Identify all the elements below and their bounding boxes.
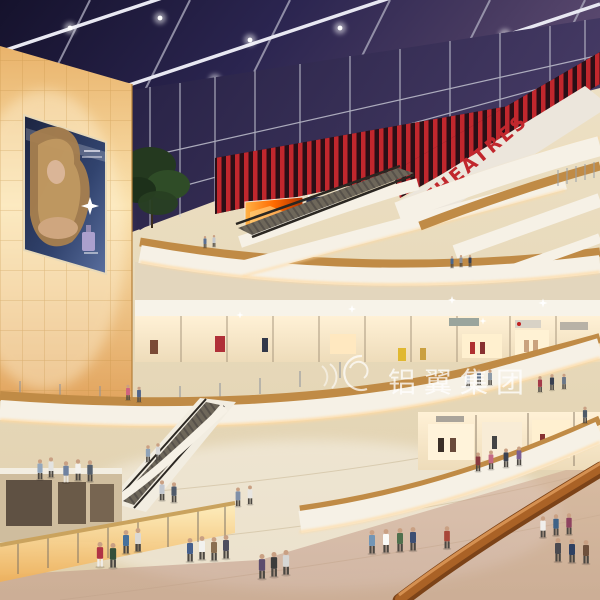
backlit-panel-wall	[0, 46, 132, 400]
billboard-perfume-bottle	[82, 232, 95, 251]
watermark-text: 铝翼集团	[388, 366, 532, 399]
shop-signboard-right	[436, 416, 464, 422]
perfume-billboard	[24, 115, 106, 274]
atrium-scene: THEATRES	[0, 0, 600, 600]
mall-atrium-rendering: THEATRES	[0, 0, 600, 600]
billboard-model-shoulder	[38, 217, 78, 239]
